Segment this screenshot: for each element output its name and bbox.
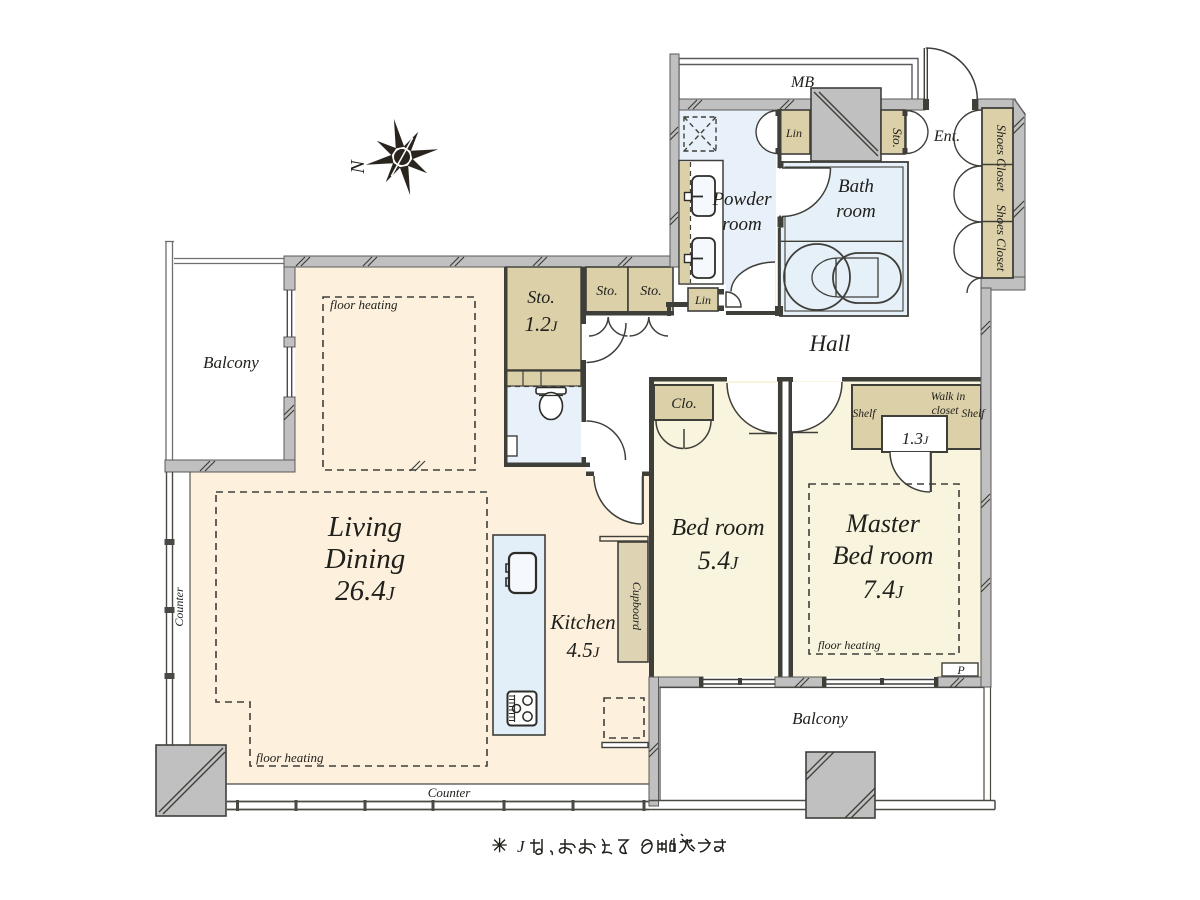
svg-text:Hall: Hall	[809, 331, 851, 356]
svg-text:Balcony: Balcony	[792, 709, 848, 728]
svg-text:Balcony: Balcony	[203, 353, 259, 372]
svg-text:room: room	[836, 201, 875, 222]
svg-text:Master: Master	[845, 509, 921, 538]
svg-text:room: room	[722, 214, 761, 235]
svg-text:Kitchen: Kitchen	[549, 610, 615, 634]
svg-text:Living: Living	[327, 511, 402, 543]
svg-text:Bed room: Bed room	[833, 541, 934, 570]
svg-text:Counter: Counter	[428, 785, 472, 800]
svg-text:Shelf: Shelf	[962, 408, 987, 420]
svg-text:N: N	[347, 159, 369, 175]
svg-text:Powder: Powder	[711, 189, 772, 210]
svg-text:closet: closet	[932, 405, 960, 417]
svg-text:Clo.: Clo.	[671, 396, 696, 412]
svg-text:Walk in: Walk in	[931, 391, 966, 403]
svg-text:Shelf: Shelf	[853, 408, 878, 420]
svg-text:Lin: Lin	[785, 126, 802, 140]
svg-text:floor heating: floor heating	[256, 750, 324, 765]
svg-text:Sto.: Sto.	[527, 287, 555, 307]
svg-text:Ent.: Ent.	[933, 128, 960, 145]
svg-text:Bed room: Bed room	[671, 515, 764, 541]
svg-text:Shoes Closet: Shoes Closet	[994, 125, 1009, 192]
svg-text:Sto.: Sto.	[890, 128, 905, 148]
svg-text:floor heating: floor heating	[330, 297, 398, 312]
svg-text:Shoes Closet: Shoes Closet	[994, 205, 1009, 272]
svg-text:floor heating: floor heating	[818, 638, 880, 652]
svg-text:Counter: Counter	[172, 587, 186, 627]
svg-text:Bath: Bath	[838, 176, 874, 197]
svg-text:Dining: Dining	[324, 543, 406, 575]
svg-text:Lin: Lin	[694, 293, 711, 307]
svg-text:P: P	[956, 663, 965, 677]
svg-text:Sto.: Sto.	[596, 284, 617, 299]
svg-text:Sto.: Sto.	[640, 284, 661, 299]
svg-text:Cupboard: Cupboard	[630, 582, 644, 631]
